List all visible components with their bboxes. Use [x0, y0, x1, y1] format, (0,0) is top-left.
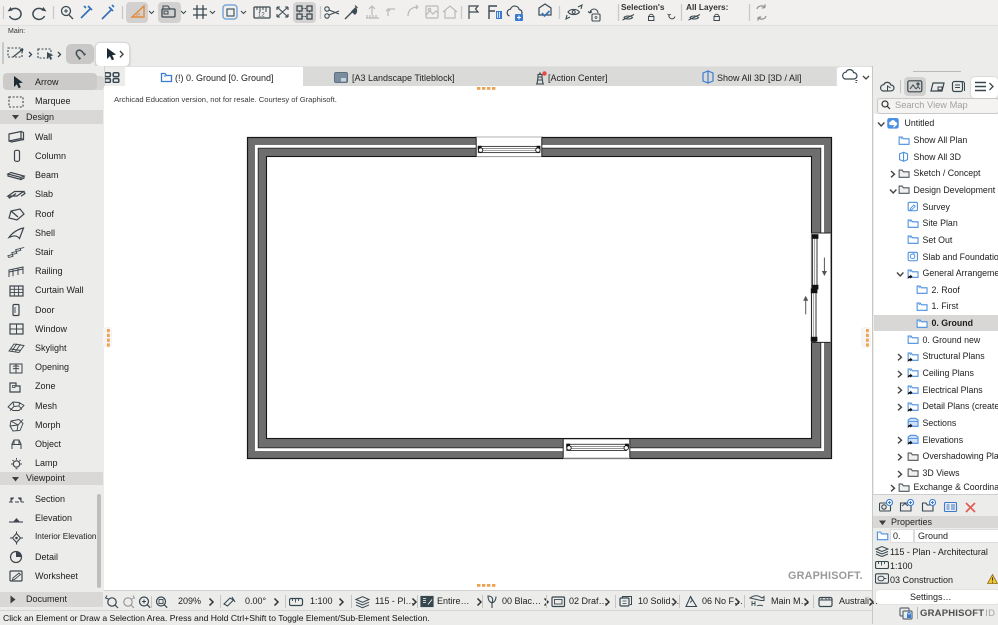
svg-text:Selection's: Selection's	[621, 2, 665, 12]
svg-text:All Layers:: All Layers:	[686, 2, 728, 12]
svg-text:12: 12	[258, 13, 265, 19]
